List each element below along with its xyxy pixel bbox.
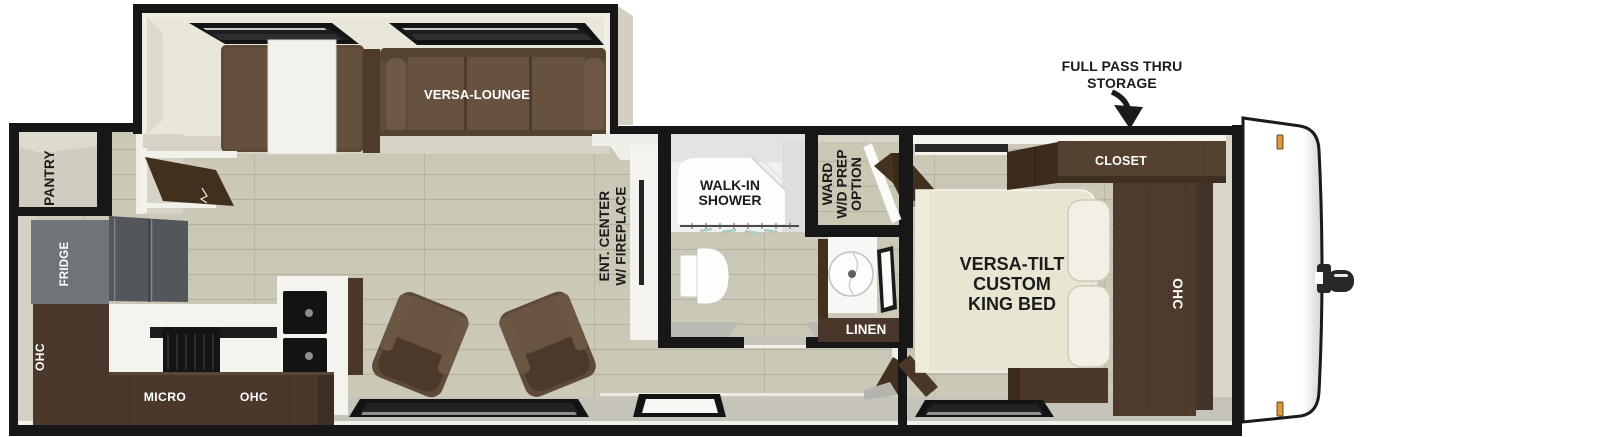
svg-text:VERSA-LOUNGE: VERSA-LOUNGE <box>424 87 530 102</box>
svg-text:FULL PASS THRU: FULL PASS THRU <box>1062 58 1183 74</box>
svg-text:LINEN: LINEN <box>846 322 887 337</box>
svg-text:CUSTOM: CUSTOM <box>973 274 1051 294</box>
svg-text:W/ FIREPLACE: W/ FIREPLACE <box>614 186 629 285</box>
svg-text:STORAGE: STORAGE <box>1087 75 1157 91</box>
svg-text:PANTRY: PANTRY <box>42 150 57 206</box>
svg-text:OHC: OHC <box>240 390 268 404</box>
svg-text:CLOSET: CLOSET <box>1095 154 1147 168</box>
svg-text:ENT. CENTER: ENT. CENTER <box>597 191 612 282</box>
svg-text:WALK-IN: WALK-IN <box>700 177 760 193</box>
svg-text:MICRO: MICRO <box>144 390 187 404</box>
svg-text:OPTION: OPTION <box>848 157 864 211</box>
svg-text:FRIDGE: FRIDGE <box>59 242 71 287</box>
svg-text:KING BED: KING BED <box>968 294 1056 314</box>
svg-text:VERSA-TILT: VERSA-TILT <box>960 254 1065 274</box>
svg-text:SHOWER: SHOWER <box>699 192 762 208</box>
svg-text:OHC: OHC <box>33 343 47 371</box>
svg-text:OHC: OHC <box>1170 278 1185 310</box>
